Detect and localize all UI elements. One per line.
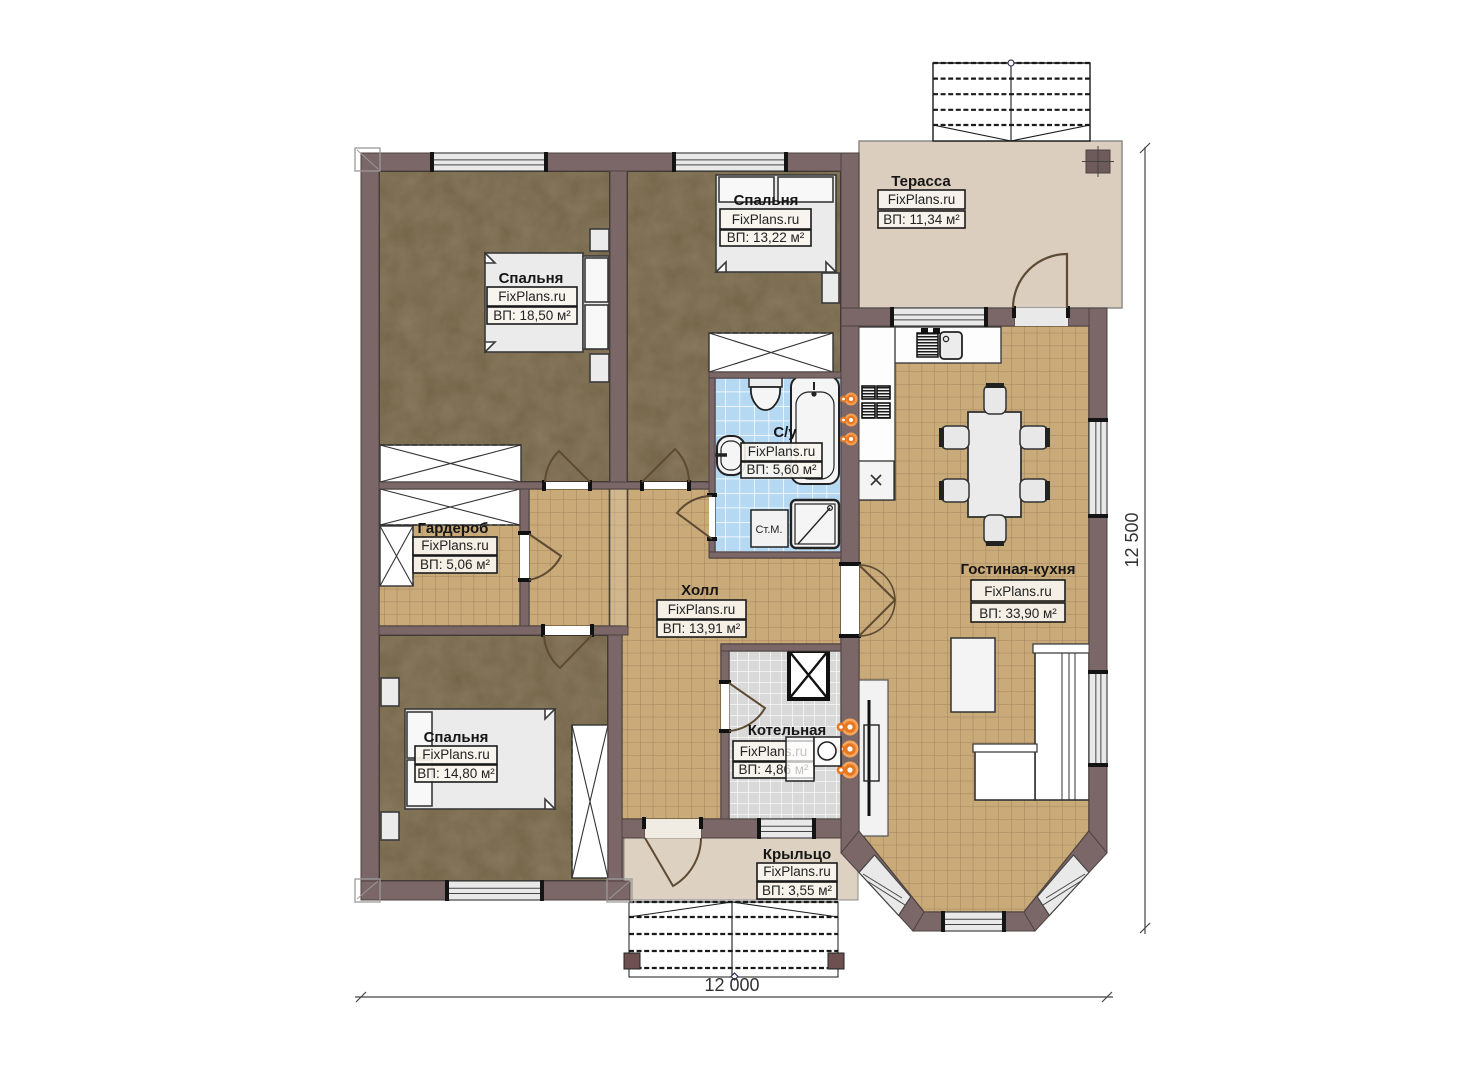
svg-text:12 000: 12 000 xyxy=(704,975,759,995)
svg-text:ВП: 33,90 м²: ВП: 33,90 м² xyxy=(979,606,1057,621)
svg-text:FixPlans.ru: FixPlans.ru xyxy=(498,289,566,304)
svg-text:ВП: 3,55 м²: ВП: 3,55 м² xyxy=(762,883,833,898)
svg-text:ВП: 13,22 м²: ВП: 13,22 м² xyxy=(727,230,805,245)
svg-text:FixPlans.ru: FixPlans.ru xyxy=(984,584,1052,599)
svg-text:ВП: 18,50 м²: ВП: 18,50 м² xyxy=(493,308,571,323)
svg-text:ВП: 13,91 м²: ВП: 13,91 м² xyxy=(663,621,741,636)
svg-text:FixPlans.ru: FixPlans.ru xyxy=(763,864,831,879)
svg-text:Терасса: Терасса xyxy=(891,173,951,190)
svg-text:FixPlans.ru: FixPlans.ru xyxy=(888,192,956,207)
svg-text:Гостиная-кухня: Гостиная-кухня xyxy=(961,561,1076,578)
svg-text:С/у: С/у xyxy=(773,424,797,441)
svg-text:FixPlans.ru: FixPlans.ru xyxy=(421,538,489,553)
svg-text:Спальня: Спальня xyxy=(499,270,564,287)
svg-text:Спальня: Спальня xyxy=(424,729,489,746)
svg-text:FixPlans.ru: FixPlans.ru xyxy=(732,212,800,227)
svg-text:ВП: 5,06 м²: ВП: 5,06 м² xyxy=(420,557,491,572)
svg-text:12 500: 12 500 xyxy=(1122,512,1142,567)
svg-text:Крыльцо: Крыльцо xyxy=(763,846,831,863)
svg-text:Спальня: Спальня xyxy=(734,192,799,209)
svg-text:Ст.М.: Ст.М. xyxy=(755,524,782,536)
svg-text:FixPlans.ru: FixPlans.ru xyxy=(422,747,490,762)
svg-text:ВП: 14,80 м²: ВП: 14,80 м² xyxy=(417,766,495,781)
svg-text:ВП: 5,60 м²: ВП: 5,60 м² xyxy=(746,462,817,477)
svg-text:FixPlans.ru: FixPlans.ru xyxy=(748,444,816,459)
svg-text:Холл: Холл xyxy=(681,582,719,599)
svg-text:FixPlans.ru: FixPlans.ru xyxy=(668,602,736,617)
svg-text:ВП: 11,34 м²: ВП: 11,34 м² xyxy=(883,212,960,227)
svg-text:Гардероб: Гардероб xyxy=(418,520,489,537)
